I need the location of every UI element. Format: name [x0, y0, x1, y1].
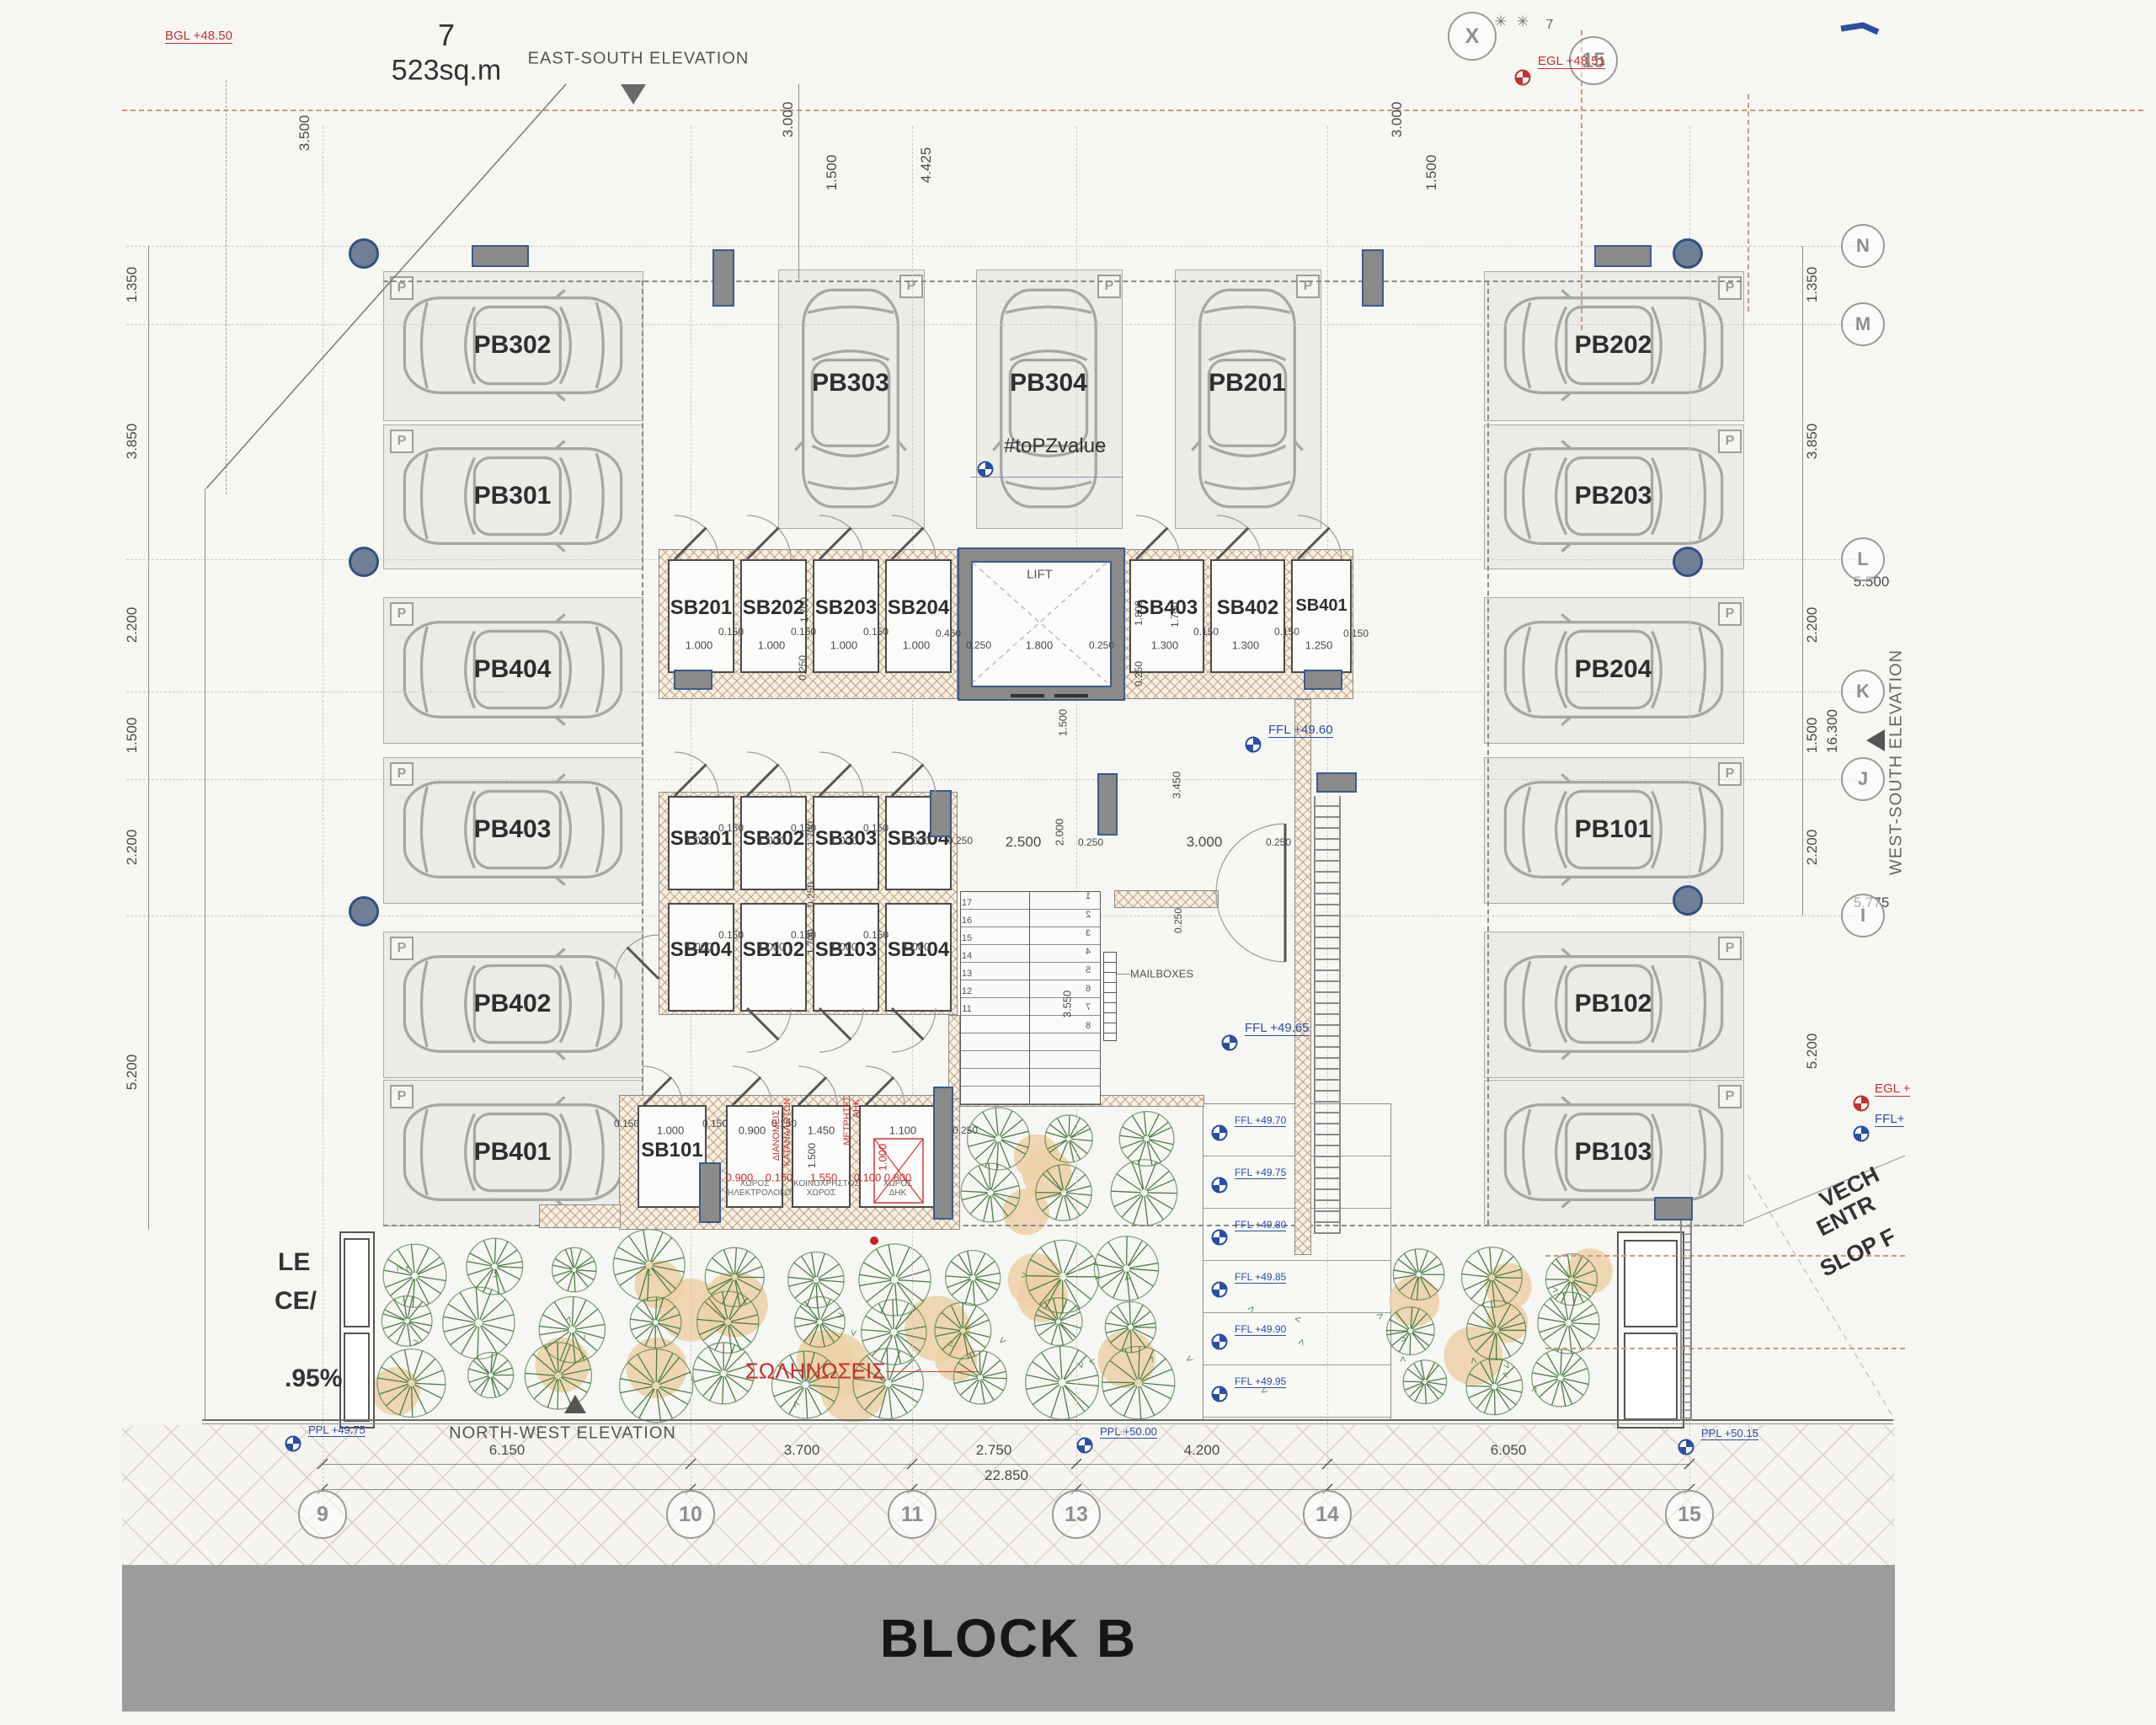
- dimension-label: 3.000: [1389, 102, 1406, 138]
- dimension-label: 1.000: [758, 835, 786, 847]
- level-label: FFL +49.90: [1235, 1323, 1286, 1336]
- grid-bubble-N: N: [1841, 224, 1885, 268]
- dimension-label: 0.150: [718, 822, 744, 834]
- dimension-label: 0.150: [718, 929, 744, 941]
- stair-number: 11: [962, 1004, 971, 1014]
- dimension-label: 1.700: [805, 821, 817, 846]
- parking-stall-label: PB201: [1209, 369, 1286, 398]
- dimension-label: 1.500: [806, 1143, 818, 1168]
- red-annotation: ΣΩΛΗΝΩΣΕΙΣ: [745, 1359, 886, 1385]
- dimension-label: 1.500: [1057, 709, 1070, 737]
- stair-number: 7: [1086, 1002, 1091, 1012]
- small-glyph: ✳: [1494, 13, 1507, 31]
- level-marker-icon: [1212, 1386, 1228, 1402]
- dimension-label: 0.450: [936, 628, 961, 639]
- level-marker-icon: [978, 462, 994, 478]
- level-marker-icon: [1212, 1178, 1228, 1194]
- dimension-label: 22.850: [985, 1467, 1028, 1484]
- dimension-label: 0.150: [702, 1118, 728, 1130]
- grid-bubble-J: J: [1841, 757, 1885, 801]
- dimension-label: 1.300: [1151, 639, 1179, 652]
- red-dimension-label: 0.900: [726, 1172, 754, 1184]
- dimension-label: 0.150: [718, 626, 744, 638]
- stair-number: 6: [1086, 984, 1091, 994]
- dimension-label: 1.100: [889, 1124, 917, 1137]
- red-annotation-vertical: ΑΗΚ: [851, 1099, 862, 1119]
- red-annotation-vertical: ΚΑΤΑΝΑΛΩΤΩΝ: [782, 1098, 792, 1167]
- dimension-label: 4.425: [918, 147, 935, 184]
- dimension-label: 1.000: [830, 639, 858, 652]
- level-marker-icon: [1515, 70, 1531, 86]
- stair-number: 12: [962, 986, 972, 996]
- level-label: BGL +48.50: [165, 29, 232, 44]
- floor-plan-sheet: 7 523sq.m EAST-SOUTH ELEVATION NORTH-WES…: [0, 0, 2156, 1725]
- red-annotation-vertical: ΔΙΑΝΟΜΕΙΣ: [771, 1110, 782, 1162]
- dimension-label: 0.150: [614, 1118, 639, 1130]
- east-south-elevation-marker-icon: [621, 84, 646, 104]
- grid-bubble-13: 13: [1052, 1490, 1101, 1539]
- stair-number: 5: [1086, 965, 1091, 975]
- level-marker-icon: [1212, 1230, 1228, 1246]
- parking-stall-label: PB202: [1575, 331, 1652, 360]
- dimension-label: 0.250: [953, 1124, 978, 1136]
- level-label: PPL +50.00: [1100, 1425, 1157, 1439]
- stair-number: 4: [1086, 947, 1091, 957]
- dimension-label: 3.850: [124, 424, 141, 460]
- dimension-label: 6.150: [489, 1442, 526, 1459]
- lot-area: 523sq.m: [392, 55, 501, 88]
- level-marker-icon: [1077, 1438, 1093, 1454]
- dimension-label: 0.150: [1193, 626, 1219, 638]
- dimension-label: 1.500: [1804, 718, 1821, 754]
- parking-stall-label: PB204: [1575, 655, 1652, 684]
- stair-number: 17: [962, 898, 972, 908]
- dimension-label: 1.700: [805, 929, 817, 954]
- grid-bubble-14: 14: [1303, 1490, 1352, 1539]
- level-marker-icon: [1854, 1126, 1870, 1142]
- grid-bubble-10: 10: [666, 1490, 715, 1539]
- lift-label: LIFT: [1027, 568, 1053, 582]
- parking-stall-label: PB402: [474, 990, 552, 1018]
- dimension-label: 1.000: [758, 639, 786, 652]
- dimension-label: 2.200: [1804, 607, 1821, 644]
- stair-number: 16: [962, 916, 972, 926]
- level-marker-icon: [1212, 1282, 1228, 1298]
- dimension-label: 0.150: [1343, 628, 1369, 639]
- dimension-label: 1.500: [124, 718, 141, 754]
- dimension-label: 3.450: [1171, 772, 1183, 799]
- north-west-elevation-marker-icon: [564, 1395, 586, 1413]
- dimension-label: 0.150: [863, 929, 889, 941]
- stair-number: 1: [1086, 891, 1091, 901]
- dimension-label: 1.300: [1232, 639, 1260, 652]
- dimension-label: 1.700: [1169, 602, 1181, 628]
- edge-fragment-left-3: .95%: [285, 1365, 342, 1393]
- dimension-label: 16.300: [1824, 709, 1841, 753]
- dimension-label: 1.000: [758, 941, 786, 953]
- dimension-label: 1.000: [686, 639, 713, 652]
- level-label: EGL +: [1875, 1081, 1910, 1097]
- dimension-label: 0.250: [805, 882, 817, 907]
- dimension-label: 6.050: [1491, 1442, 1527, 1459]
- parking-stall-label: PB203: [1575, 482, 1652, 510]
- level-marker-icon: [1222, 1035, 1238, 1051]
- red-dimension-label: 1.550: [810, 1172, 838, 1184]
- parking-stall-label: PB404: [474, 655, 552, 684]
- dimension-label: 1.450: [808, 1124, 835, 1137]
- dimension-label: 5.200: [124, 1055, 141, 1091]
- stair-number: 3: [1086, 928, 1091, 938]
- edge-fragment-left-1: LE: [278, 1248, 310, 1277]
- dimension-label: 4.200: [1184, 1442, 1220, 1459]
- level-label: FFL +49.85: [1235, 1271, 1286, 1284]
- dimension-label: 0.250: [1172, 908, 1184, 933]
- dimension-label: 1.000: [903, 639, 931, 652]
- grid-bubble-X: X: [1448, 12, 1497, 61]
- dimension-label: 2.200: [124, 830, 141, 866]
- parking-stall-label: PB403: [474, 815, 552, 844]
- grid-bubble-K: K: [1841, 670, 1885, 713]
- dimension-label: 1.500: [824, 155, 841, 191]
- small-glyph: 7: [1546, 18, 1554, 33]
- parking-stall-label: PB304: [1010, 369, 1087, 398]
- stair-number: 15: [962, 933, 972, 943]
- level-marker-icon: [1678, 1439, 1694, 1455]
- dimension-label: 1.350: [1804, 267, 1821, 303]
- dimension-label: 3.000: [780, 102, 797, 138]
- dimension-label: 0.150: [791, 626, 816, 638]
- level-label: FFL +49.65: [1245, 1021, 1310, 1036]
- parking-stall-label: PB303: [812, 369, 889, 398]
- dimension-label: 3.550: [1061, 991, 1074, 1018]
- dimension-label: 1.000: [903, 835, 931, 847]
- dimension-label: 0.250: [966, 639, 991, 651]
- level-marker-icon: [1212, 1125, 1228, 1141]
- level-label: FFL +49.60: [1268, 723, 1333, 738]
- small-glyph: ✳: [1516, 13, 1529, 31]
- dimension-label: 3.500: [296, 115, 313, 152]
- parking-stall-label: PB101: [1575, 815, 1652, 844]
- level-label: PPL +50.15: [1701, 1427, 1758, 1440]
- dimension-label: 0.250: [1266, 836, 1291, 848]
- dimension-label: 0.250: [1089, 639, 1114, 651]
- dimension-label: 2.500: [1006, 834, 1042, 851]
- stair-number: 8: [1086, 1021, 1091, 1031]
- dimension-label: 1.000: [686, 835, 713, 847]
- level-label: FFL +49.75: [1235, 1167, 1286, 1179]
- grid-bubble-9: 9: [298, 1490, 347, 1539]
- dimension-label: 0.250: [947, 835, 973, 846]
- dimension-label: 1.000: [830, 835, 858, 847]
- dimension-label: 1.800: [1133, 601, 1145, 626]
- red-dimension-label: 0.800: [884, 1172, 912, 1184]
- level-marker-icon: [286, 1436, 302, 1452]
- dimension-label: 3.700: [784, 1442, 820, 1459]
- grid-bubble-M: M: [1841, 302, 1885, 346]
- dimension-label: 0.250: [1078, 836, 1103, 848]
- dimension-label: 1.000: [657, 1124, 685, 1137]
- dimension-label: 1.350: [124, 267, 141, 303]
- dimension-label: 2.200: [124, 607, 141, 644]
- east-south-elevation-label: EAST-SOUTH ELEVATION: [528, 50, 750, 69]
- slope-entrance-note: VECH ENTR F SLOP: [1668, 1070, 1905, 1423]
- dimension-label: 5.200: [1804, 1033, 1821, 1070]
- level-label: FFL +49.80: [1235, 1219, 1286, 1231]
- parking-stall-label: PB301: [474, 482, 552, 510]
- parking-stall-label: PB401: [474, 1138, 552, 1167]
- door-and-linework-overlay: [0, 0, 2156, 1725]
- red-dimension-label: 0.150: [766, 1172, 793, 1184]
- grid-bubble-I: I: [1841, 894, 1885, 937]
- level-marker-icon: [1212, 1334, 1228, 1350]
- dimension-label: 0.250: [797, 655, 808, 681]
- dimension-label: 1.000: [903, 941, 931, 953]
- dimension-label: 2.200: [1804, 830, 1821, 866]
- dimension-label: 0.150: [1274, 626, 1299, 638]
- dimension-label: 1.000: [830, 941, 858, 953]
- level-label: EGL +48.51: [1538, 54, 1605, 69]
- grid-bubble-15: 15: [1665, 1490, 1714, 1539]
- dimension-label: 3.850: [1804, 424, 1821, 460]
- mailboxes-label: MAILBOXES: [1130, 968, 1193, 980]
- level-label: FFL +49.95: [1235, 1375, 1286, 1388]
- west-south-elevation-label: WEST-SOUTH ELEVATION: [1887, 649, 1907, 875]
- dimension-label: 2.750: [976, 1442, 1012, 1459]
- west-south-elevation-marker-icon: [1866, 729, 1885, 751]
- dimension-label: 0.250: [1133, 661, 1145, 686]
- parking-stall-label: PB103: [1575, 1138, 1652, 1167]
- dimension-label: 0.900: [739, 1124, 766, 1137]
- level-marker-icon: [1246, 737, 1262, 753]
- grid-bubble-L: L: [1841, 537, 1885, 581]
- dimension-label: 2.000: [1054, 819, 1066, 846]
- grid-bubble-11: 11: [888, 1490, 937, 1539]
- dimension-label: 1.000: [686, 941, 713, 953]
- parking-stall-label: PB102: [1575, 990, 1652, 1018]
- level-label: FFL+: [1875, 1112, 1904, 1127]
- level-label: PPL +49.75: [308, 1423, 366, 1437]
- lot-number: 7: [438, 18, 455, 53]
- level-label: #toPZvalue: [1004, 435, 1106, 458]
- dimension-label: 1.250: [1305, 639, 1333, 652]
- stair-number: 2: [1086, 910, 1091, 920]
- dimension-label: 0.150: [863, 822, 889, 834]
- level-label: FFL +49.70: [1235, 1114, 1286, 1127]
- dimension-label: 3.000: [1187, 834, 1223, 851]
- dimension-label: 1.500: [1423, 155, 1440, 191]
- dimension-label: 1.800: [1026, 639, 1054, 652]
- north-west-elevation-label: NORTH-WEST ELEVATION: [449, 1424, 676, 1444]
- parking-stall-label: PB302: [474, 331, 552, 360]
- dimension-label: 1.700: [798, 597, 810, 622]
- stair-number: 14: [962, 951, 972, 961]
- edge-fragment-left-2: CE/: [275, 1287, 317, 1316]
- level-marker-icon: [1854, 1096, 1870, 1112]
- red-dimension-label: 0.100: [854, 1172, 882, 1184]
- dimension-label: 0.150: [863, 626, 889, 638]
- stair-number: 13: [962, 969, 972, 979]
- red-dimension-label: 1.000: [877, 1144, 889, 1172]
